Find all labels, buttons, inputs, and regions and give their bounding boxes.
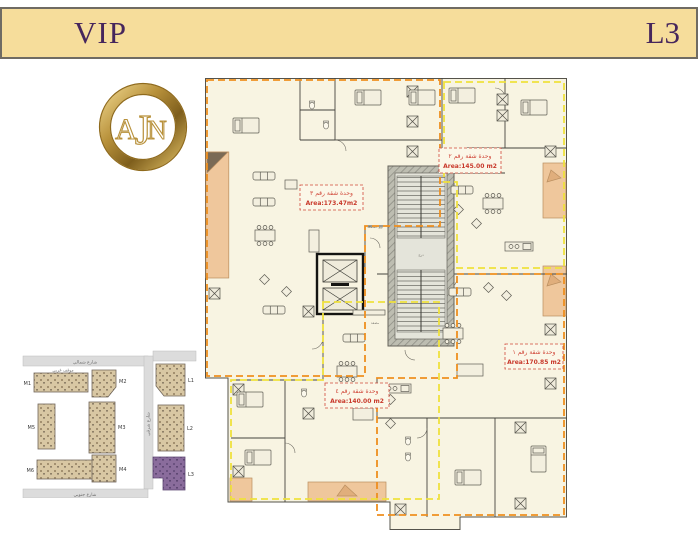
- street-south-label: شارع جنوبي: [74, 493, 97, 498]
- block-M3: [89, 402, 115, 453]
- block-label-L1: L1: [188, 378, 194, 384]
- unit-4-area: Area:140.00 m2: [330, 398, 384, 405]
- unit-3-name: وحدة شقة رقم ٣: [310, 190, 353, 197]
- street-east-label: شارع شرقي: [147, 412, 152, 436]
- left-group-caption: موقف غربي: [52, 368, 73, 373]
- block-label-M3: M3: [118, 425, 126, 431]
- slide: VIP L3 A J N: [0, 0, 698, 536]
- unit-4-name: وحدة شقة رقم ٤: [336, 388, 379, 395]
- unit-3-area: Area:173.47m2: [306, 200, 358, 207]
- block-label-M1: M1: [24, 381, 32, 387]
- unit-2-area: Area:145.00 m2: [443, 163, 497, 170]
- floor-plan: بهو المصعد مصعد درج: [205, 78, 567, 530]
- gold-ring-monogram-icon: A J N: [93, 80, 193, 180]
- block-label-L2: L2: [187, 426, 193, 432]
- unit-3-label: وحدة شقة رقم ٣ Area:173.47m2: [300, 185, 363, 210]
- unit-1-label: وحدة شقة رقم ١ Area:170.85 m2: [505, 344, 563, 369]
- block-M5: [38, 404, 55, 449]
- block-M4: [92, 455, 116, 482]
- elevator-label: مصعد: [371, 321, 379, 325]
- block-M2: [92, 370, 116, 397]
- block-L2: [158, 405, 184, 451]
- floor-level-badge: L3: [646, 15, 680, 51]
- unit-2-label: وحدة شقة رقم ٢ Area:145.00 m2: [439, 148, 501, 173]
- stair-label: درج: [418, 253, 424, 257]
- balcony-right-upper: [543, 163, 566, 218]
- block-label-M4: M4: [119, 467, 127, 473]
- header-bar: VIP L3: [0, 7, 698, 59]
- key-plan-drawing: شارع شمالي شارع جنوبي شارع شرقي موقف غرب…: [18, 336, 198, 498]
- balcony-bottom-left: [230, 478, 252, 501]
- street-north-label: شارع شمالي: [73, 361, 98, 366]
- block-L3-highlighted: [153, 457, 185, 490]
- page-title: VIP: [74, 15, 127, 51]
- unit-1-area: Area:170.85 m2: [507, 359, 561, 366]
- block-label-M5: M5: [28, 425, 36, 431]
- block-L1: [156, 364, 185, 396]
- block-label-M6: M6: [27, 468, 35, 474]
- unit-4-label: وحدة شقة رقم ٤ Area:140.00 m2: [325, 383, 389, 408]
- block-label-L3: L3: [188, 472, 194, 478]
- block-label-M2: M2: [119, 379, 127, 385]
- key-plan: شارع شمالي شارع جنوبي شارع شرقي موقف غرب…: [18, 336, 198, 498]
- unit-2-name: وحدة شقة رقم ٢: [449, 153, 492, 160]
- street-north-east: [153, 351, 196, 361]
- brand-logo: A J N: [93, 80, 193, 180]
- monogram-letter: N: [147, 115, 167, 145]
- floor-plan-drawing: بهو المصعد مصعد درج: [205, 78, 567, 530]
- block-M1: [34, 373, 88, 392]
- unit-1-name: وحدة شقة رقم ١: [513, 349, 556, 356]
